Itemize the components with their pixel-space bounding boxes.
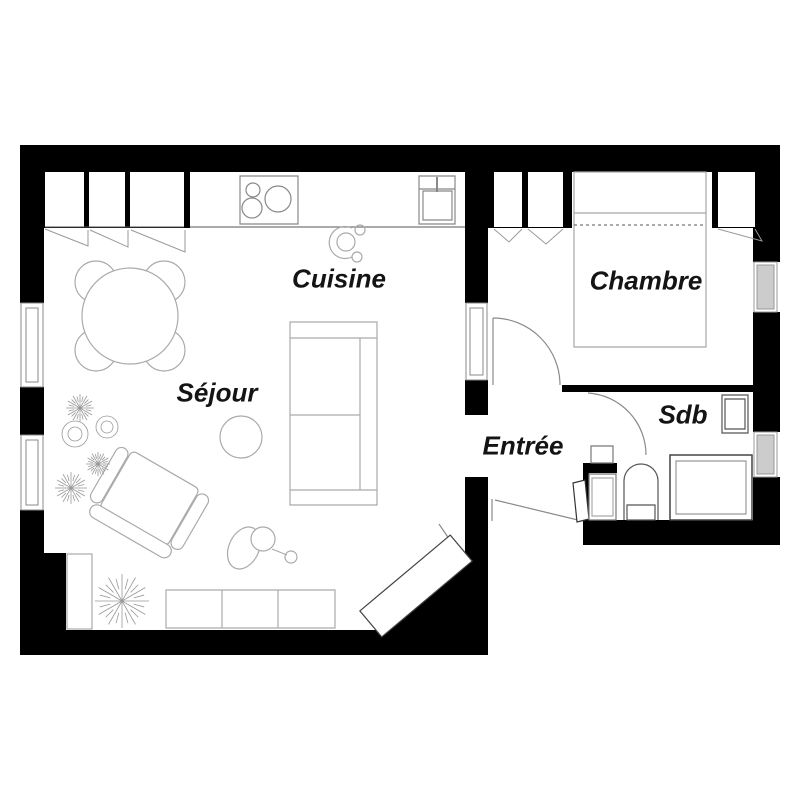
sideboard-icon: [166, 590, 335, 628]
wall-top: [20, 145, 780, 172]
plant-bush-icon: [96, 416, 118, 438]
wall-bath-bottom: [583, 520, 780, 545]
kitchen-counter: [190, 172, 465, 228]
wardrobe-door-swing-icon: [494, 229, 522, 242]
person-sejour-icon: [221, 522, 297, 575]
pouf-icon: [220, 416, 262, 458]
toilet-icon: [624, 464, 658, 520]
wall-bath-stub-h: [583, 463, 617, 473]
bathroom-sink-icon: [722, 395, 748, 433]
sink-icon: [419, 176, 455, 224]
stove-icon: [240, 176, 298, 224]
wall-divider-post: [465, 477, 488, 632]
plant-star-icon: [55, 472, 87, 504]
kitchen-cabinets: [45, 172, 185, 252]
window-icon: [21, 435, 43, 510]
wall-left-mid: [20, 387, 44, 435]
armchair-icon: [81, 443, 212, 564]
window-icon: [21, 303, 43, 387]
plant-star-icon: [95, 574, 149, 628]
shower-icon: [670, 455, 752, 520]
cabinet-door-swing-icon: [131, 230, 185, 252]
wardrobe-box: [494, 172, 522, 227]
living-furniture: [75, 261, 472, 637]
bed-icon: [574, 172, 706, 347]
technical-duct: [67, 554, 92, 629]
window-icon: [754, 432, 777, 477]
sofa-icon: [290, 322, 377, 505]
wall-bottom: [20, 630, 488, 655]
wall-chambre-bottom: [562, 385, 758, 392]
dining-table-icon: [82, 268, 178, 364]
cabinet-door-swing-icon: [90, 230, 128, 247]
room-label-cuisine: Cuisine: [292, 264, 386, 295]
plant-star-icon: [66, 394, 94, 422]
wall-divider-upper: [465, 172, 488, 303]
cabinet-box: [45, 172, 84, 227]
window-icon: [754, 262, 777, 312]
cabinet-box: [89, 172, 125, 227]
plant-bush-icon: [62, 421, 88, 447]
room-label-sejour: Séjour: [177, 378, 258, 409]
wall-right-1: [753, 172, 780, 262]
wardrobe-box: [528, 172, 563, 227]
room-label-sdb: Sdb: [658, 400, 707, 431]
wardrobe-box: [718, 172, 755, 227]
wall-right-2: [753, 312, 780, 432]
window-icon: [466, 303, 487, 380]
bedroom-door-swing-icon: [493, 318, 560, 385]
wall-divider-mid: [465, 380, 488, 415]
floor-plan: Cuisine Séjour Chambre Entrée Sdb: [0, 0, 800, 800]
wall-notch-block: [44, 553, 66, 632]
room-label-entree: Entrée: [483, 431, 564, 462]
wall-left-lower: [20, 510, 44, 632]
cabinet-door-swing-icon: [45, 229, 88, 246]
bathroom-cabinet-icon: [591, 446, 613, 463]
wall-left-upper: [20, 172, 44, 303]
room-label-chambre: Chambre: [590, 266, 703, 297]
cabinet-box: [130, 172, 184, 227]
person-kitchen-icon: [329, 225, 365, 262]
washing-machine-icon: [589, 474, 616, 520]
wardrobe-door-swing-icon: [528, 229, 563, 244]
